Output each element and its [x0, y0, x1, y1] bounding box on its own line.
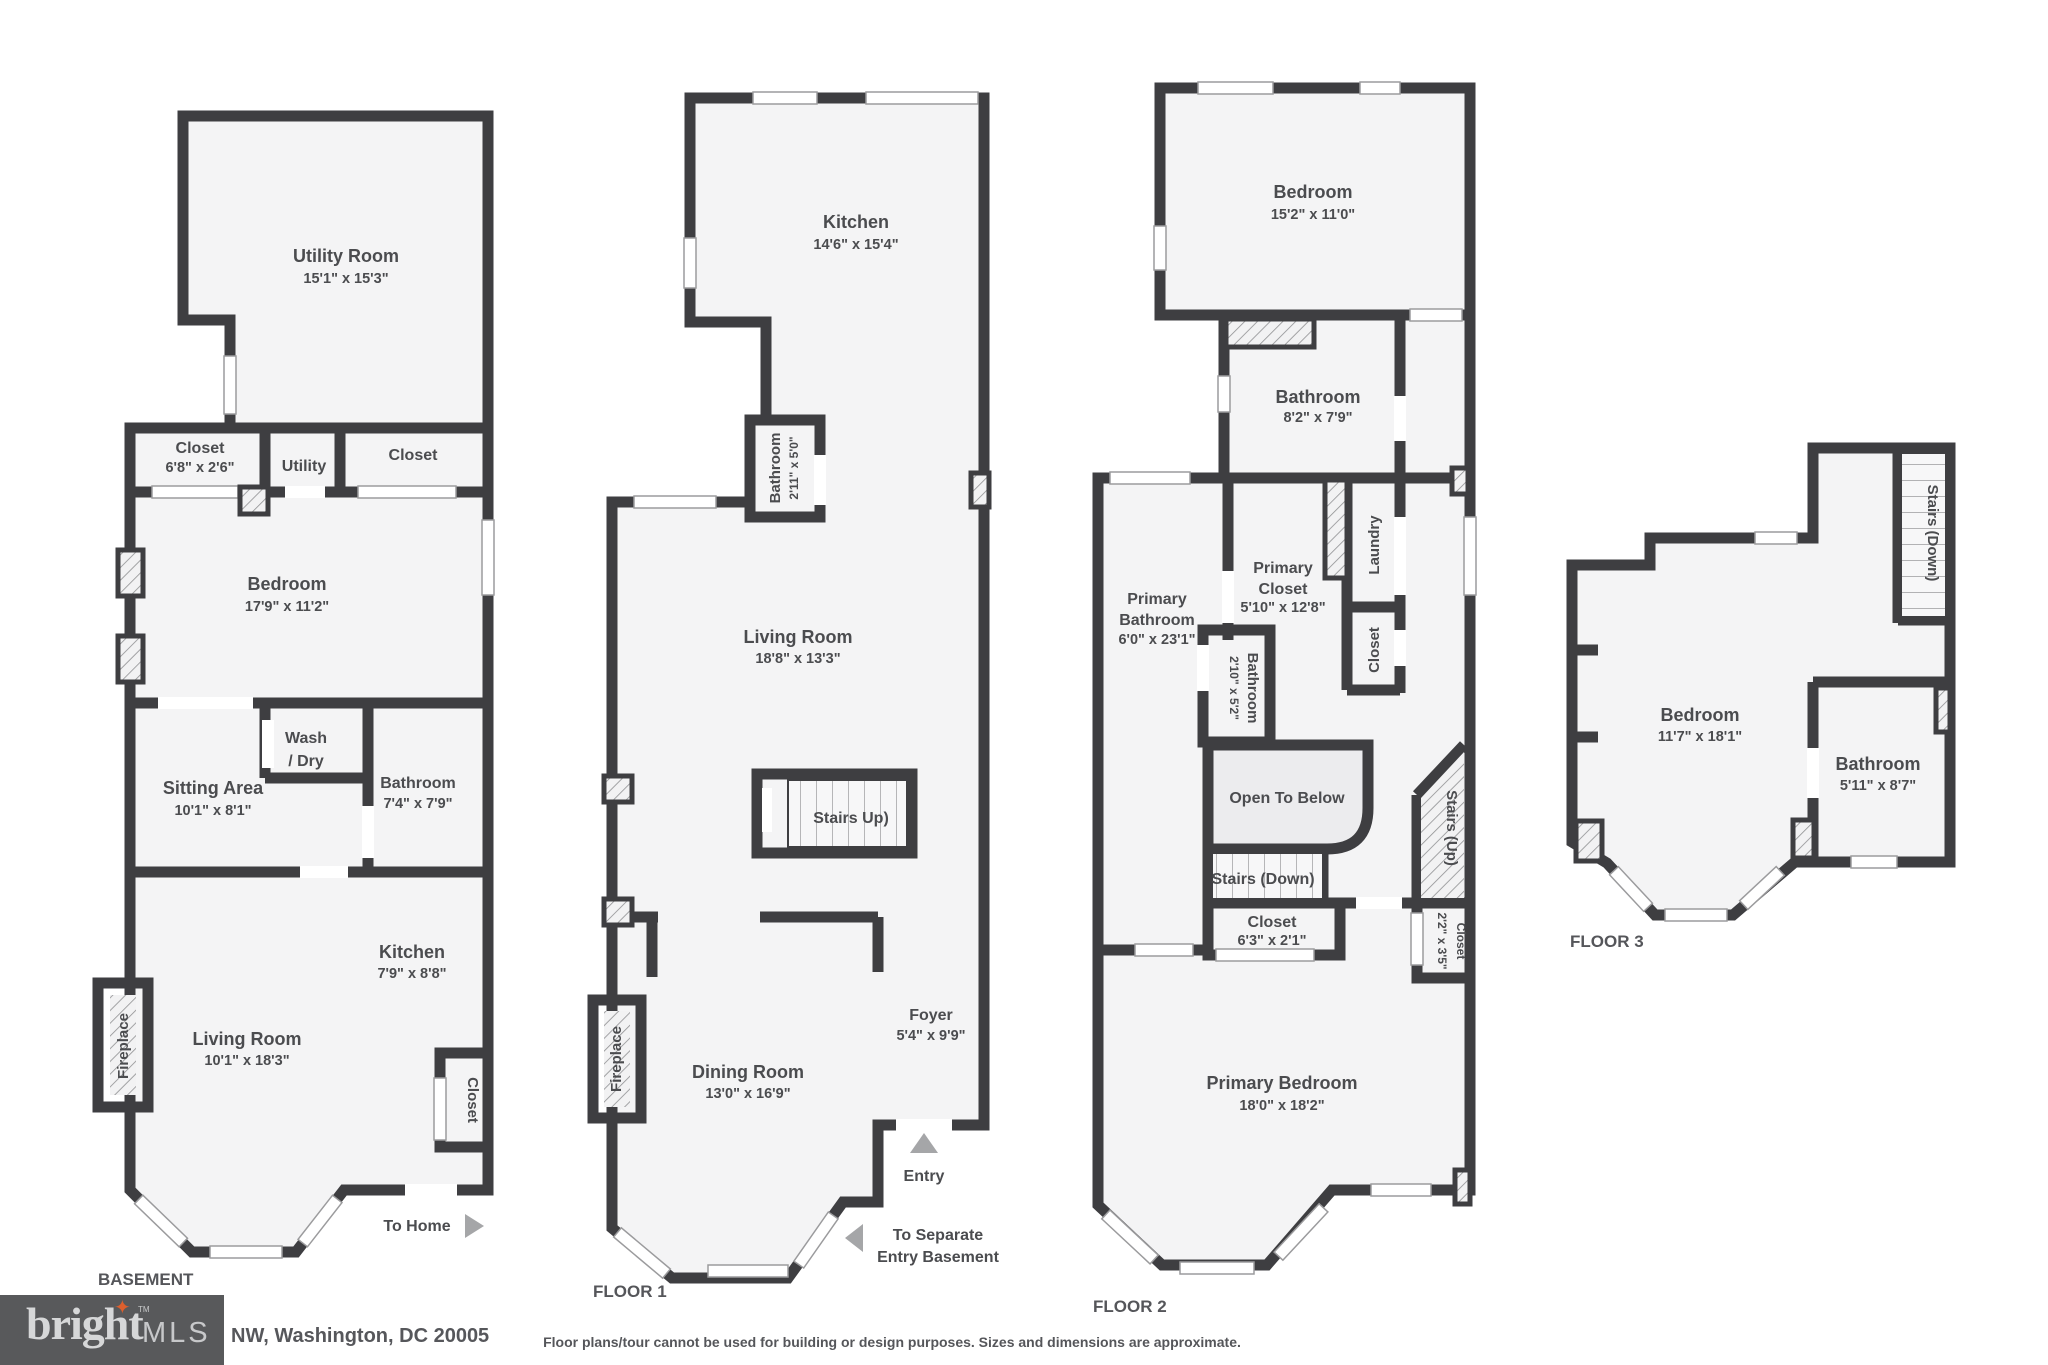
svg-text:Closet: Closet	[1454, 923, 1468, 960]
svg-text:8'2" x 7'9": 8'2" x 7'9"	[1283, 410, 1352, 426]
floor2-laundry-label: Laundry	[1366, 515, 1383, 575]
svg-text:To Separate: To Separate	[893, 1227, 984, 1244]
floor3-floor-label: FLOOR 3	[1570, 932, 1644, 951]
svg-text:5'4" x 9'9": 5'4" x 9'9"	[896, 1028, 965, 1044]
svg-text:Closet: Closet	[1259, 581, 1309, 598]
svg-text:Kitchen: Kitchen	[379, 942, 445, 962]
basement-closet-lower-label: Closet	[464, 1077, 481, 1123]
svg-text:6'0" x 23'1": 6'0" x 23'1"	[1118, 632, 1195, 648]
svg-text:Living Room: Living Room	[744, 627, 853, 647]
floor2-open-to-below-label: Open To Below	[1229, 790, 1345, 807]
floor1-entry: Entry	[904, 1133, 945, 1185]
svg-text:6'3" x 2'1": 6'3" x 2'1"	[1237, 933, 1306, 949]
svg-text:Bedroom: Bedroom	[1660, 705, 1739, 725]
floor2-stairs-down-label: Stairs (Down)	[1211, 871, 1314, 888]
svg-text:11'7" x 18'1": 11'7" x 18'1"	[1658, 729, 1742, 745]
svg-text:Wash: Wash	[285, 730, 327, 747]
floor-plan-page: Fireplace Utility Room 15'1" x 15'3" Clo…	[0, 0, 2048, 1365]
svg-text:Bathroom: Bathroom	[1119, 612, 1195, 629]
svg-text:To Home: To Home	[383, 1218, 450, 1235]
svg-text:Primary: Primary	[1127, 591, 1187, 608]
svg-text:7'4" x 7'9": 7'4" x 7'9"	[383, 796, 452, 812]
svg-text:Bedroom: Bedroom	[247, 574, 326, 594]
floor1-fireplace-label: Fireplace	[608, 1026, 625, 1092]
floor1-floor-label: FLOOR 1	[593, 1282, 667, 1301]
basement-fireplace-label: Fireplace	[115, 1013, 132, 1079]
basement-to-home: To Home	[383, 1214, 484, 1238]
svg-text:Closet: Closet	[176, 440, 226, 457]
svg-text:Living Room: Living Room	[193, 1029, 302, 1049]
svg-text:Bedroom: Bedroom	[1273, 182, 1352, 202]
svg-text:15'2" x 11'0": 15'2" x 11'0"	[1271, 207, 1355, 223]
logo-trademark: TM	[138, 1305, 150, 1314]
to-home-arrow-icon	[465, 1214, 484, 1238]
floor3-stairs-down-label: Stairs (Down)	[1924, 485, 1941, 582]
floor-plans-drawing: Fireplace Utility Room 15'1" x 15'3" Clo…	[0, 0, 2048, 1365]
to-separate-entry-arrow-icon	[845, 1224, 863, 1252]
floor2-primary-bathroom-label: Primary Bathroom 6'0" x 23'1"	[1118, 591, 1195, 648]
svg-text:17'9" x 11'2": 17'9" x 11'2"	[245, 599, 329, 615]
floor1-stairs-up-label: Stairs Up)	[813, 810, 889, 827]
svg-text:18'8" x 13'3": 18'8" x 13'3"	[755, 651, 840, 667]
svg-text:Bathroom: Bathroom	[1836, 754, 1921, 774]
basement-closet-right-label: Closet	[389, 447, 439, 464]
floor1-outline	[612, 98, 984, 1278]
svg-text:Bathroom: Bathroom	[1276, 387, 1361, 407]
bright-mls-logo: bright ✦ TM MLS	[0, 1295, 224, 1365]
svg-text:14'6" x 15'4": 14'6" x 15'4"	[813, 237, 898, 253]
floor1-to-separate-entry: To Separate Entry Basement	[845, 1224, 1000, 1266]
floor1-plan: Fireplace Kitchen 14'6" x 15'4" Bathroom…	[593, 92, 1000, 1301]
floor2-floor-label: FLOOR 2	[1093, 1297, 1167, 1316]
svg-text:6'8" x 2'6": 6'8" x 2'6"	[165, 460, 234, 476]
svg-text:Bathroom: Bathroom	[1244, 653, 1261, 724]
svg-text:Bathroom: Bathroom	[380, 775, 456, 792]
svg-text:Foyer: Foyer	[909, 1007, 953, 1024]
svg-text:13'0" x 16'9": 13'0" x 16'9"	[705, 1086, 790, 1102]
floor2-closet-mid-label: Closet	[1366, 627, 1383, 673]
svg-text:Utility Room: Utility Room	[293, 246, 399, 266]
svg-text:10'1" x 18'3": 10'1" x 18'3"	[204, 1053, 289, 1069]
basement-utility-label: Utility	[282, 458, 327, 475]
entry-arrow-icon	[910, 1133, 938, 1153]
logo-mls-text: MLS	[142, 1317, 211, 1350]
svg-text:7'9" x 8'8": 7'9" x 8'8"	[377, 966, 446, 982]
disclaimer-text: Floor plans/tour cannot be used for buil…	[442, 1334, 1342, 1350]
floor2-bathroom-label: Bathroom 8'2" x 7'9"	[1276, 387, 1361, 426]
svg-text:10'1" x 8'1": 10'1" x 8'1"	[174, 803, 251, 819]
basement-plan: Fireplace Utility Room 15'1" x 15'3" Clo…	[98, 116, 494, 1289]
floor2-plan: Bedroom 15'2" x 11'0" Bathroom 8'2" x 7'…	[1093, 82, 1476, 1316]
svg-text:2'2" x 3'5": 2'2" x 3'5"	[1435, 912, 1449, 969]
svg-text:2'11" x 5'0": 2'11" x 5'0"	[787, 436, 801, 499]
basement-floor-label: BASEMENT	[98, 1270, 194, 1289]
svg-text:5'11" x 8'7": 5'11" x 8'7"	[1840, 778, 1916, 794]
svg-text:Kitchen: Kitchen	[823, 212, 889, 232]
svg-text:Primary: Primary	[1253, 560, 1313, 577]
svg-text:5'10" x 12'8": 5'10" x 12'8"	[1240, 600, 1325, 616]
svg-text:Dining Room: Dining Room	[692, 1062, 804, 1082]
floor3-plan: Stairs (Down) Bedroom 11'7" x 18'1" Bath…	[1570, 448, 1950, 951]
svg-text:Entry Basement: Entry Basement	[877, 1249, 999, 1266]
svg-text:/ Dry: / Dry	[288, 753, 324, 770]
logo-star-icon: ✦	[114, 1295, 131, 1320]
svg-text:Primary Bedroom: Primary Bedroom	[1206, 1073, 1357, 1093]
svg-text:Entry: Entry	[904, 1168, 945, 1185]
svg-text:Sitting Area: Sitting Area	[163, 778, 264, 798]
svg-text:2'10" x 5'2": 2'10" x 5'2"	[1227, 656, 1241, 720]
svg-text:15'1" x 15'3": 15'1" x 15'3"	[303, 271, 388, 287]
svg-text:Bathroom: Bathroom	[767, 433, 784, 504]
svg-text:18'0" x 18'2": 18'0" x 18'2"	[1239, 1098, 1324, 1114]
floor2-stairs-up-label: Stairs (Up)	[1443, 790, 1460, 866]
svg-text:Closet: Closet	[1248, 914, 1298, 931]
